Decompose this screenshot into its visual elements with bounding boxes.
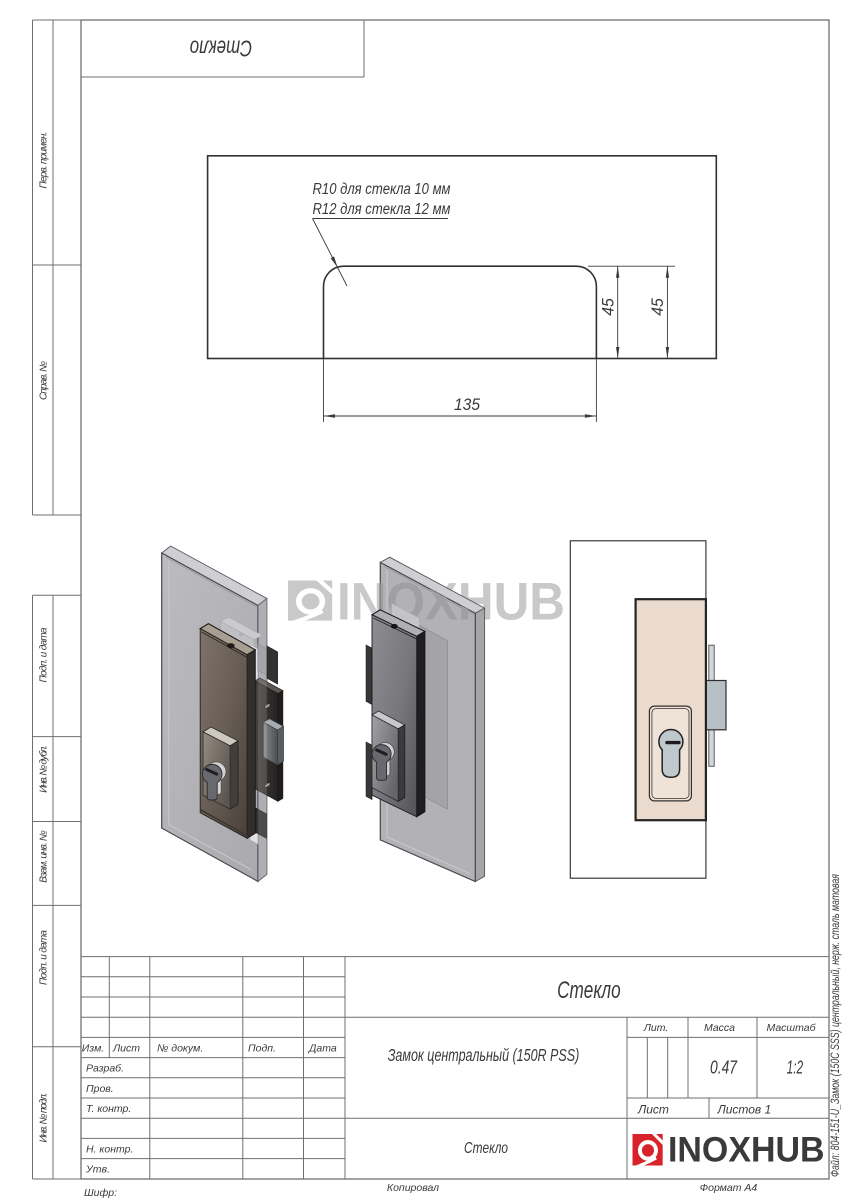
svg-text:Масштаб: Масштаб	[766, 1022, 816, 1034]
svg-text:Подп.: Подп.	[248, 1043, 276, 1055]
svg-text:R12 для стекла 12 мм: R12 для стекла 12 мм	[313, 201, 451, 218]
svg-text:Подп. и дата: Подп. и дата	[39, 627, 50, 682]
svg-text:Листов 1: Листов 1	[717, 1103, 772, 1117]
svg-text:Взам. инв. №: Взам. инв. №	[39, 830, 50, 883]
svg-text:0.47: 0.47	[710, 1058, 738, 1078]
svg-text:Подп. и дата: Подп. и дата	[39, 930, 50, 985]
svg-text:Формат А4: Формат А4	[700, 1182, 758, 1194]
svg-text:45: 45	[649, 297, 667, 315]
svg-text:45: 45	[600, 297, 618, 315]
svg-text:Масса: Масса	[704, 1022, 735, 1034]
svg-text:Изм.: Изм.	[82, 1043, 104, 1055]
svg-text:Утв.: Утв.	[85, 1164, 110, 1176]
svg-text:Справ. №: Справ. №	[39, 361, 50, 400]
svg-text:Инв. № подл.: Инв. № подл.	[39, 1093, 50, 1143]
svg-text:Перв. примен.: Перв. примен.	[39, 132, 50, 189]
svg-text:R10 для стекла 10 мм: R10 для стекла 10 мм	[313, 181, 451, 198]
svg-text:Н. контр.: Н. контр.	[86, 1144, 133, 1156]
svg-text:Лист: Лист	[637, 1103, 669, 1117]
svg-text:1:2: 1:2	[787, 1058, 804, 1078]
svg-text:Лит.: Лит.	[643, 1022, 669, 1034]
svg-text:Копировал: Копировал	[387, 1182, 439, 1194]
svg-text:Замок центральный (150R PSS): Замок центральный (150R PSS)	[388, 1045, 580, 1065]
svg-text:Дата: Дата	[308, 1043, 337, 1055]
svg-text:INOXHUB: INOXHUB	[668, 1130, 825, 1170]
svg-text:Лист: Лист	[112, 1043, 140, 1055]
svg-text:Стекло: Стекло	[557, 977, 621, 1004]
svg-text:Инв. № дубл.: Инв. № дубл.	[38, 745, 50, 793]
svg-text:Файл: 804-151-U_Замок (150С SS: Файл: 804-151-U_Замок (150С SSS) централ…	[828, 874, 842, 1177]
svg-text:Стекло: Стекло	[464, 1140, 508, 1157]
svg-text:Разраб.: Разраб.	[86, 1063, 124, 1075]
svg-text:Пров.: Пров.	[86, 1083, 114, 1095]
svg-text:Шифр:: Шифр:	[84, 1187, 117, 1199]
svg-text:Стекло: Стекло	[190, 36, 253, 62]
svg-text:№ докум.: № докум.	[157, 1043, 203, 1055]
svg-text:Т. контр.: Т. контр.	[86, 1103, 131, 1115]
svg-text:135: 135	[454, 396, 481, 414]
